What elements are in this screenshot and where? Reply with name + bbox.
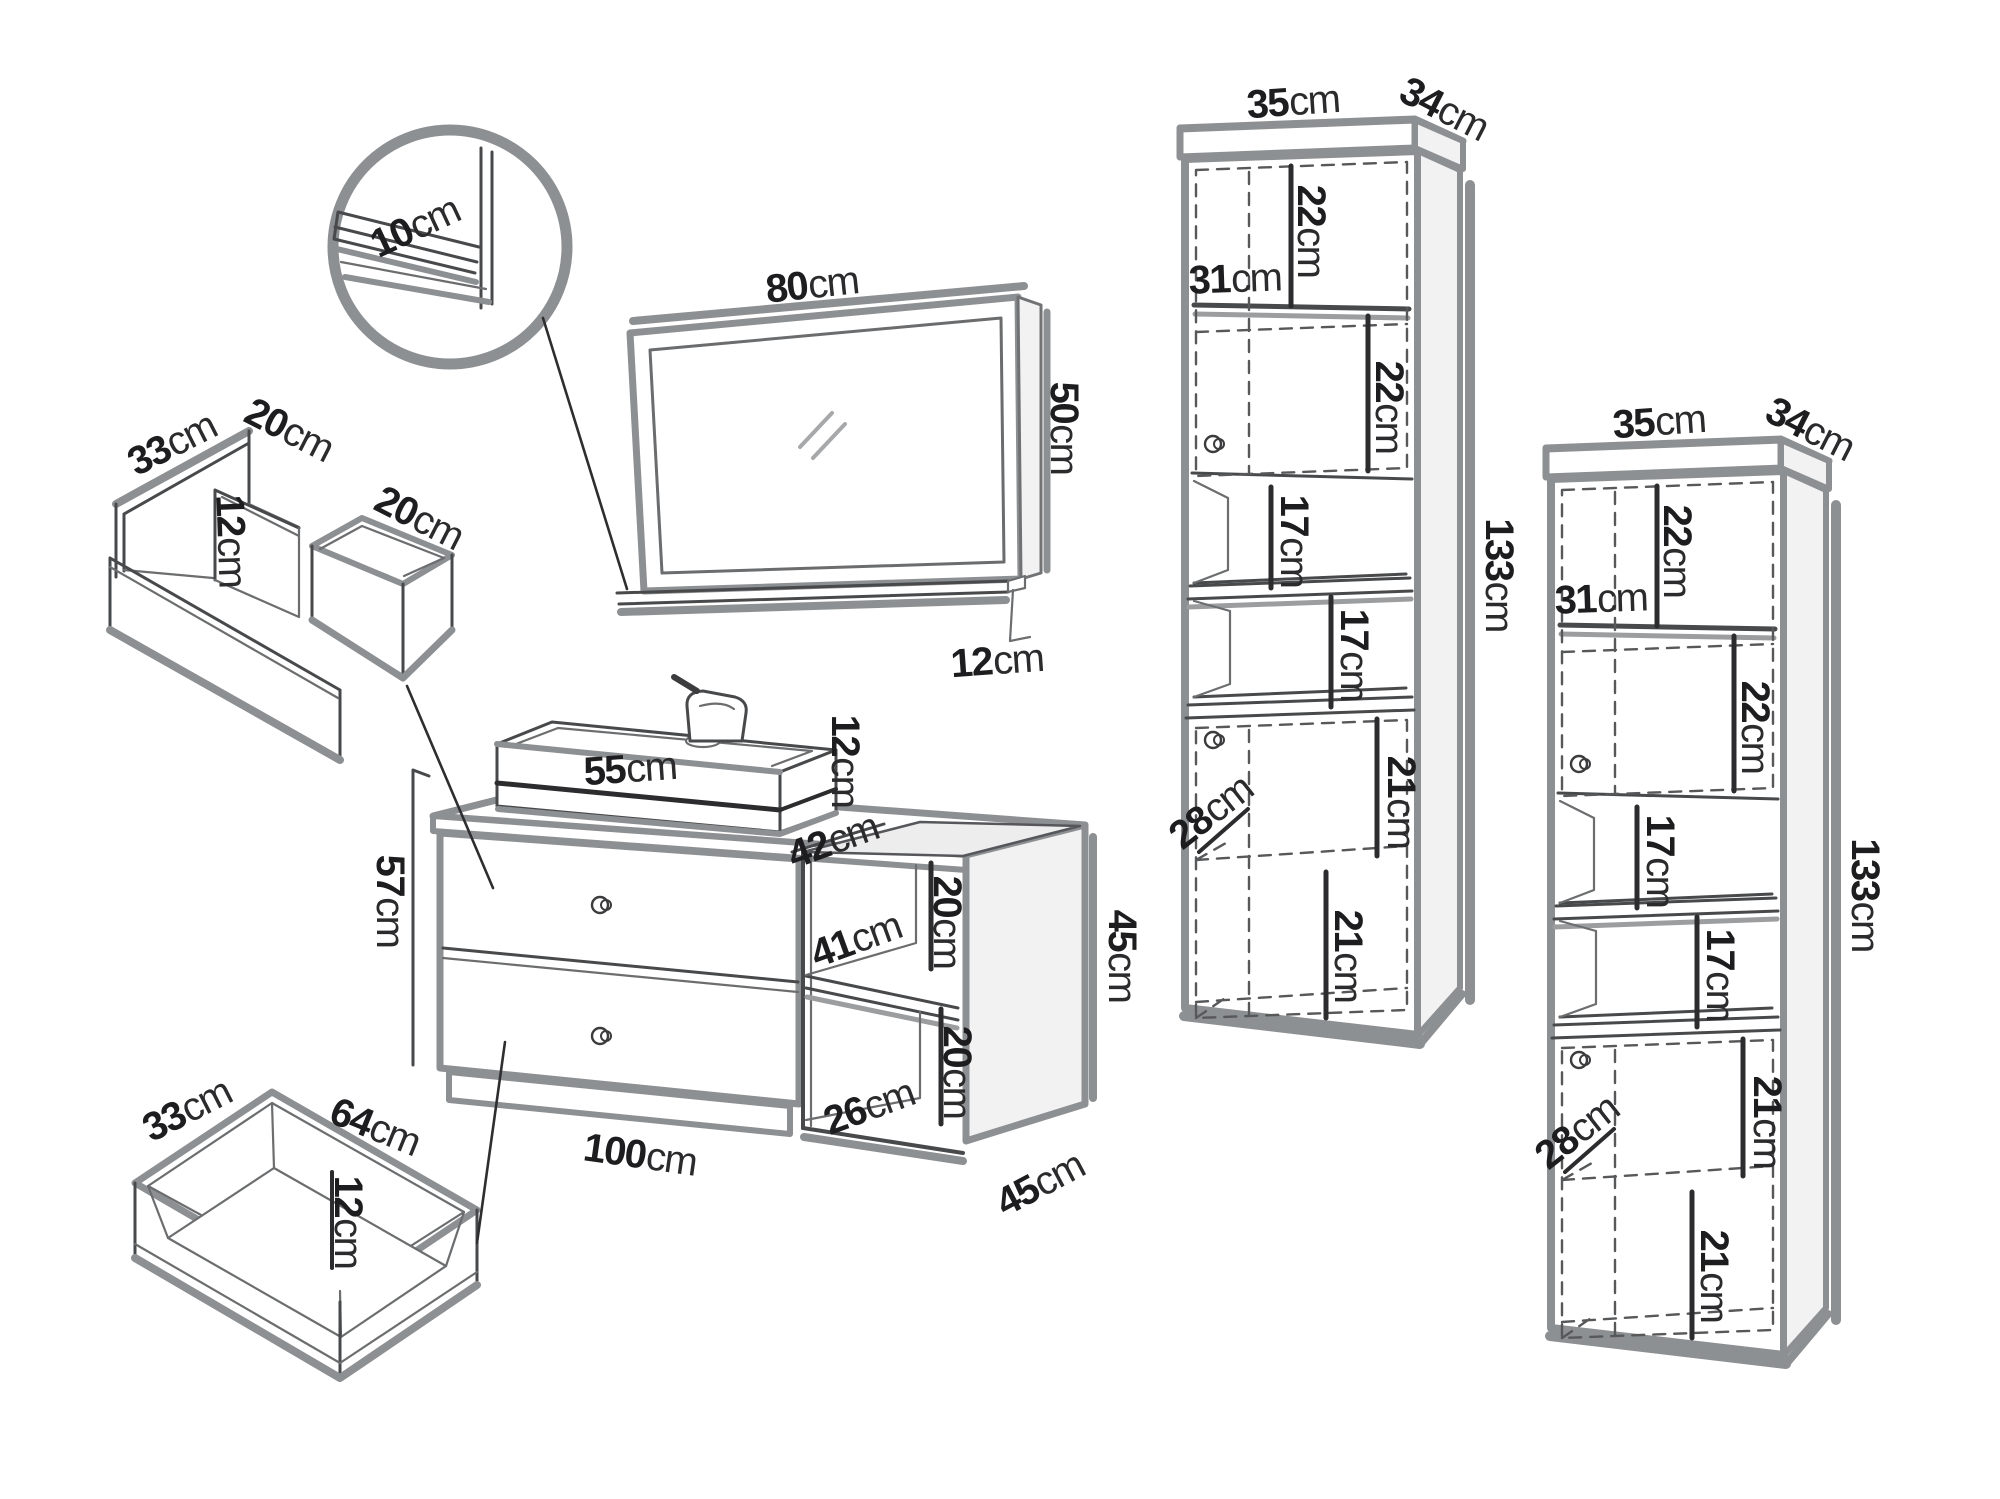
furniture-line-art [0, 0, 2000, 1499]
shelf-detail-circle [333, 130, 567, 364]
mirror-with-shelf [617, 286, 1047, 641]
tall-cabinet-1 [1180, 119, 1470, 1044]
sink [497, 670, 836, 834]
top-drawer-detail [110, 431, 452, 760]
diagram-canvas: 10cm80cm50cm12cm33cm20cm12cm20cm55cm12cm… [0, 0, 2000, 1499]
tall-cabinet-2 [1546, 439, 1836, 1364]
bottom-drawer-detail [135, 1092, 477, 1378]
